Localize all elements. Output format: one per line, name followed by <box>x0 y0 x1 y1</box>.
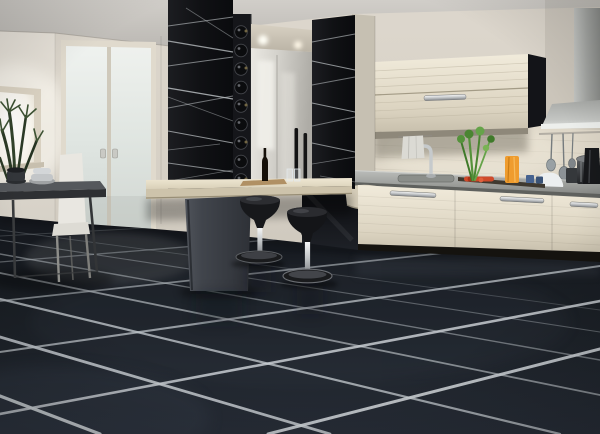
kitchen-scene <box>0 0 600 434</box>
kitchen-photo <box>0 0 600 434</box>
vignette <box>0 0 600 434</box>
